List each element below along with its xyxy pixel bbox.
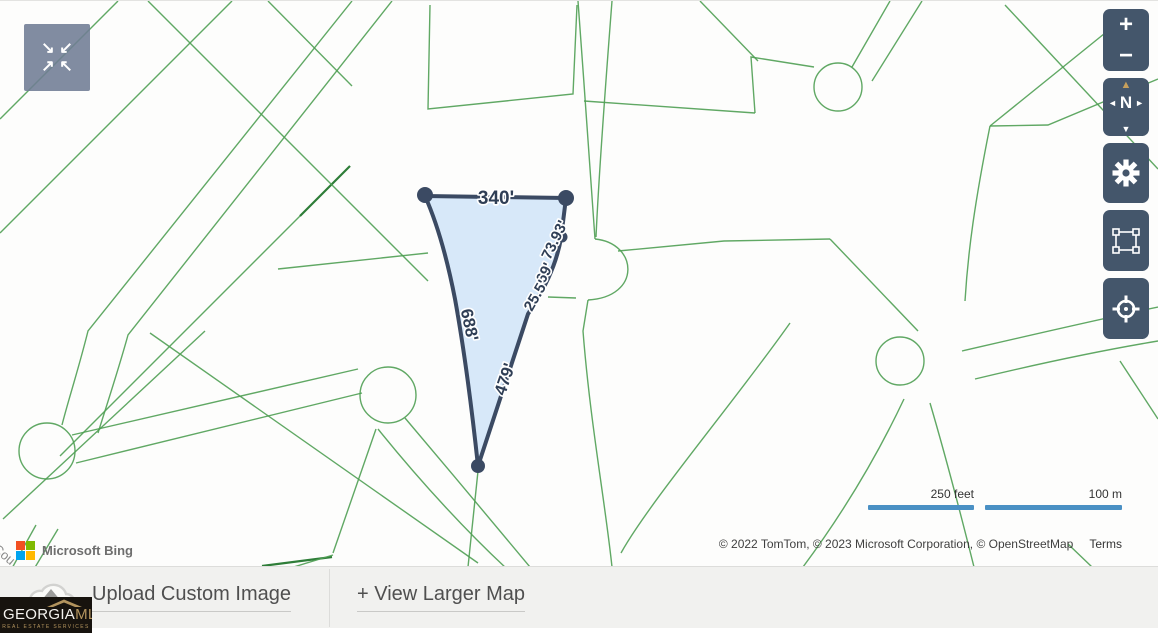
scale-imperial-bar <box>868 505 974 510</box>
gear-icon <box>1111 158 1141 188</box>
parcel-vertex <box>558 190 574 206</box>
parcel-map-widget: 340' 73.93' 69' 25.5' 688' 479' Cou ↘ ↙ … <box>0 0 1158 635</box>
collapse-arrow-bl: ↗ <box>39 58 57 76</box>
view-larger-map-label: + View Larger Map <box>357 583 525 612</box>
brand-name-secondary: MLS <box>75 606 92 623</box>
brand-name-primary: GEORGIA <box>3 606 75 623</box>
zoom-out-button[interactable]: − <box>1103 40 1149 71</box>
collapse-map-button[interactable]: ↘ ↙ ↗ ↖ <box>24 24 90 91</box>
copyright-text: © 2022 TomTom, © 2023 Microsoft Corporat… <box>719 537 1073 551</box>
zoom-in-button[interactable]: + <box>1103 9 1149 40</box>
view-larger-map-button[interactable]: + View Larger Map <box>357 583 525 612</box>
scale-bar-imperial: 250 feet <box>868 487 974 510</box>
map-canvas[interactable]: 340' 73.93' 69' 25.5' 688' 479' Cou ↘ ↙ … <box>0 0 1158 566</box>
scale-metric-bar <box>985 505 1122 510</box>
collapse-icon: ↘ ↙ ↗ ↖ <box>39 40 75 76</box>
region-select-button[interactable] <box>1103 210 1149 271</box>
microsoft-bing-logo: Microsoft Bing <box>16 541 133 560</box>
collapse-arrow-tl: ↘ <box>39 40 57 58</box>
compass-tilt-down-icon[interactable]: ▼ <box>1103 124 1149 134</box>
map-drawing: 340' 73.93' 69' 25.5' 688' 479' <box>0 1 1158 567</box>
parcel-vertex <box>471 459 485 473</box>
compass-control[interactable]: ▲ ◄ N ► ▼ <box>1103 78 1149 136</box>
map-parcel-lines <box>0 1 1158 567</box>
microsoft-logo-icon <box>16 541 35 560</box>
zoom-control: + − <box>1103 9 1149 71</box>
collapse-arrow-tr: ↙ <box>57 40 75 58</box>
crosshair-icon <box>1110 293 1142 325</box>
terms-link[interactable]: Terms <box>1089 537 1122 551</box>
compass-tilt-up-icon[interactable]: ▲ <box>1103 79 1149 91</box>
parcel-vertex <box>417 187 433 203</box>
georgia-mls-logo: GEORGIAMLS REAL ESTATE SERVICES <box>0 597 92 633</box>
brand-tagline: REAL ESTATE SERVICES <box>0 624 92 630</box>
dim-label-top: 340' <box>478 188 514 209</box>
selection-icon <box>1109 225 1143 257</box>
locate-button[interactable] <box>1103 278 1149 339</box>
map-settings-button[interactable] <box>1103 143 1149 203</box>
collapse-arrow-br: ↖ <box>57 58 75 76</box>
footer-toolbar: Upload Custom Image + View Larger Map <box>0 566 1158 628</box>
scale-imperial-label: 250 feet <box>868 487 974 501</box>
scale-bar-metric: 100 m <box>985 487 1122 510</box>
bing-logo-text: Microsoft Bing <box>42 543 133 558</box>
footer-divider <box>329 569 330 627</box>
upload-custom-image-label: Upload Custom Image <box>92 583 291 612</box>
compass-rotate-right-icon[interactable]: ► <box>1135 98 1144 108</box>
scale-metric-label: 100 m <box>985 487 1122 501</box>
